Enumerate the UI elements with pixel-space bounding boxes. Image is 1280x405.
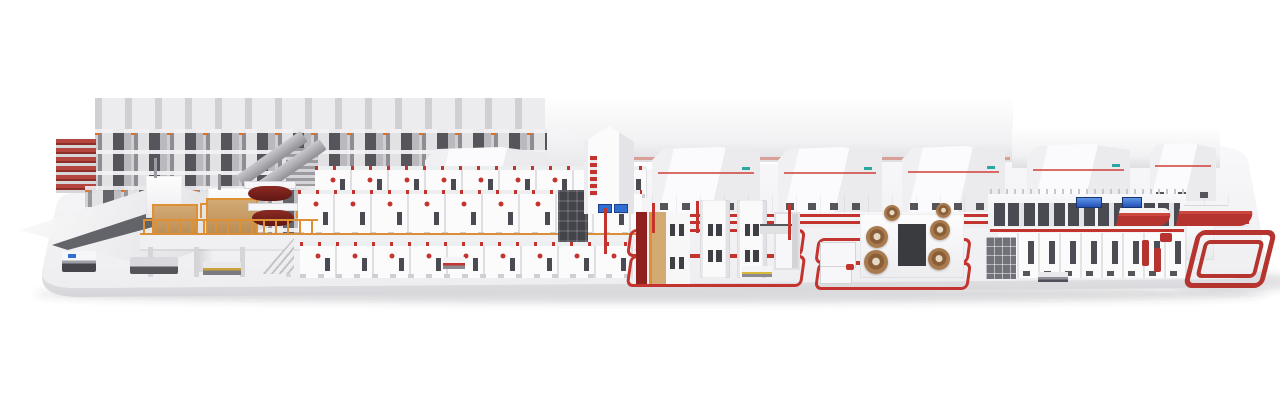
window-pair xyxy=(708,224,722,236)
rollstand-orange xyxy=(636,246,690,284)
paper-roll xyxy=(866,226,888,248)
red-rack-tower xyxy=(56,139,96,193)
red-rail-stub xyxy=(1160,233,1172,242)
red-conveyor-straight xyxy=(1116,208,1172,226)
gallery-screen xyxy=(1076,197,1102,208)
red-rail-stub xyxy=(1154,248,1161,272)
cabinet-stripe xyxy=(658,172,754,174)
paper-roll xyxy=(936,203,951,218)
back-structure-columns xyxy=(95,98,550,132)
window-pair xyxy=(745,224,759,236)
agv-flat xyxy=(130,257,178,274)
blue-sign xyxy=(614,204,628,213)
cabinet-stripe xyxy=(1155,165,1211,167)
cabinet-stripe xyxy=(908,171,999,173)
paper-roll xyxy=(864,250,888,274)
gallery-screen xyxy=(1122,197,1142,208)
cabinet-logo xyxy=(1112,164,1120,167)
red-rail-stub xyxy=(1142,240,1149,266)
corrugator-line-render xyxy=(0,0,1280,405)
red-mast xyxy=(788,204,791,240)
maroon-paper-roll xyxy=(248,186,292,201)
cabinet-logo xyxy=(987,166,995,169)
splicer-slab xyxy=(860,214,964,278)
paper-roll xyxy=(930,220,950,240)
red-roller-loop xyxy=(1183,230,1277,288)
red-mast xyxy=(652,203,655,233)
pallet-cart xyxy=(203,262,241,275)
sheeter-mast xyxy=(154,158,157,178)
slab-opening xyxy=(898,224,926,266)
cabinet-logo xyxy=(864,167,872,170)
service-cart xyxy=(1038,272,1068,282)
tower-red-strip xyxy=(590,156,597,196)
red-conveyor-straight xyxy=(1176,206,1255,226)
glass-control-room xyxy=(986,237,1016,279)
service-cart xyxy=(443,257,465,269)
singlefacer-tower xyxy=(584,126,634,214)
red-mast xyxy=(604,208,607,254)
window-pair xyxy=(745,250,759,262)
window-pair xyxy=(708,250,722,262)
sheeter-mast xyxy=(218,174,221,190)
cabinet-stripe xyxy=(1033,169,1124,171)
splicer-tower xyxy=(700,200,730,278)
red-marker xyxy=(846,264,854,270)
corrugator-row-lower xyxy=(300,246,634,278)
cabinet-stripe xyxy=(784,172,876,174)
paper-roll xyxy=(928,248,950,270)
c-frame xyxy=(774,212,800,270)
agv-small xyxy=(62,251,96,272)
paper-roll xyxy=(884,205,900,221)
cabinet-logo xyxy=(742,167,750,170)
red-mast xyxy=(696,201,699,233)
agv-screen xyxy=(68,254,76,258)
service-cart xyxy=(742,266,772,277)
